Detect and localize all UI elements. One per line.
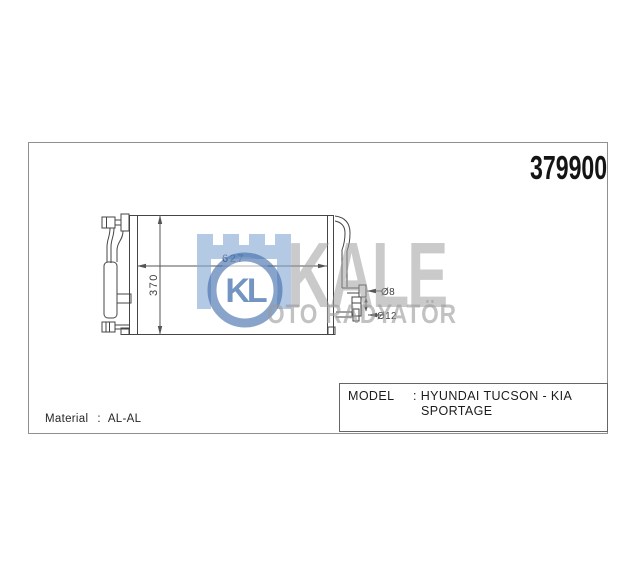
material-label: Material bbox=[45, 413, 88, 425]
model-label: MODEL bbox=[348, 389, 413, 419]
model-value-line1: : HYUNDAI TUCSON - KIA bbox=[413, 389, 572, 404]
width-dimension-label: 627 bbox=[222, 253, 245, 265]
left-fittings bbox=[102, 214, 131, 332]
technical-drawing-svg: 627 370 Ø8 Ø12 bbox=[0, 0, 640, 577]
height-dimension-label: 370 bbox=[148, 273, 160, 296]
receiver-drier bbox=[104, 262, 117, 318]
material-value: AL-AL bbox=[108, 413, 141, 425]
part-number: 379900 bbox=[530, 149, 607, 187]
model-value-line2: SPORTAGE bbox=[413, 404, 572, 419]
right-fittings bbox=[335, 216, 366, 321]
pipe-diameter-bottom-label: Ø12 bbox=[377, 311, 397, 322]
catalog-page: 627 370 Ø8 Ø12 379900 KL KALE OTO RADYAT… bbox=[0, 0, 640, 577]
material-field: Material:AL-AL bbox=[45, 413, 141, 425]
pipe-diameter-top-label: Ø8 bbox=[381, 287, 395, 298]
model-field: MODEL : HYUNDAI TUCSON - KIA SPORTAGE bbox=[348, 389, 572, 419]
model-value: : HYUNDAI TUCSON - KIA SPORTAGE bbox=[413, 389, 572, 419]
material-separator: : bbox=[97, 413, 101, 425]
